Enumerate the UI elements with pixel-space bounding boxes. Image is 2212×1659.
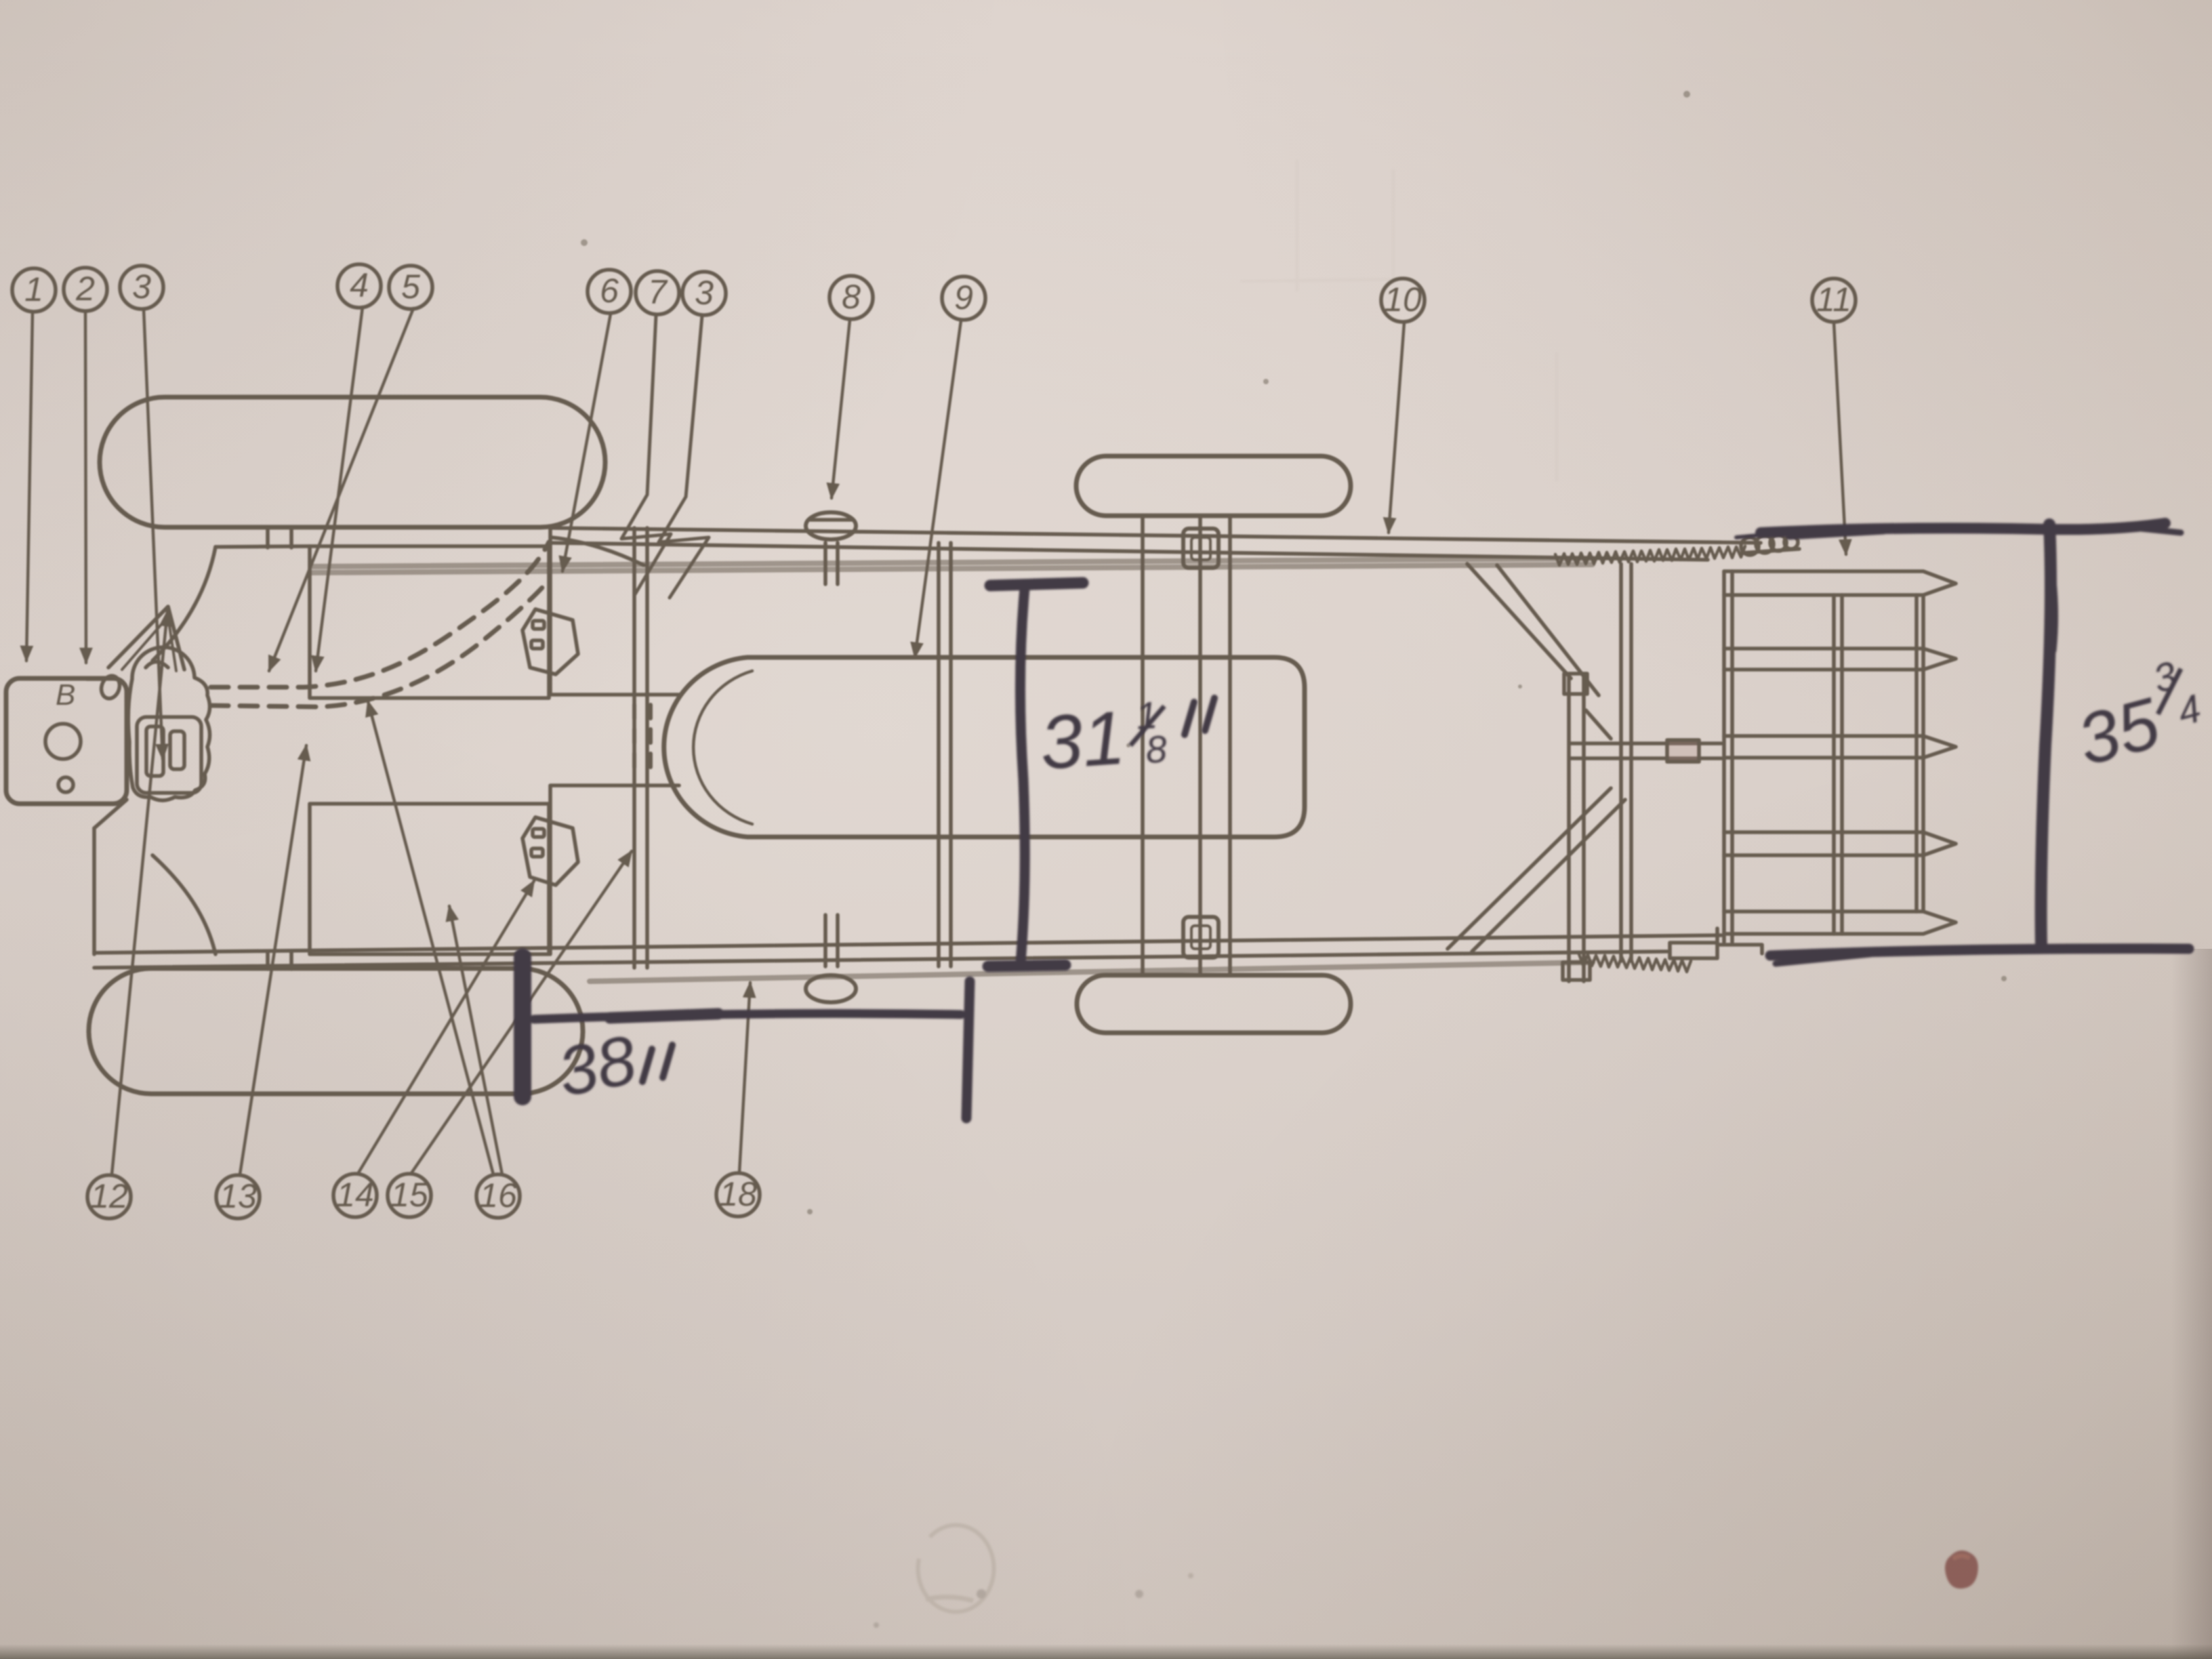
- svg-text:1: 1: [24, 270, 43, 308]
- svg-text:12: 12: [90, 1177, 128, 1215]
- svg-text:16: 16: [479, 1176, 517, 1214]
- svg-text:8: 8: [842, 278, 861, 316]
- svg-text:11: 11: [1816, 281, 1851, 319]
- svg-text:B: B: [56, 678, 75, 712]
- svg-text:18: 18: [719, 1175, 757, 1213]
- svg-text:8: 8: [1144, 727, 1168, 771]
- svg-text:3: 3: [132, 268, 151, 306]
- svg-text:2: 2: [75, 270, 95, 308]
- svg-text:10: 10: [1384, 281, 1422, 319]
- svg-text:38: 38: [552, 1021, 642, 1111]
- svg-text:6: 6: [600, 272, 619, 310]
- svg-text:15: 15: [390, 1176, 428, 1214]
- svg-text:3: 3: [695, 274, 714, 312]
- svg-text:7: 7: [648, 273, 668, 311]
- svg-text:13: 13: [219, 1177, 257, 1215]
- svg-text:31: 31: [1038, 695, 1128, 785]
- svg-text:9: 9: [954, 279, 973, 316]
- svg-text:14: 14: [336, 1176, 374, 1214]
- svg-text:5: 5: [401, 268, 420, 306]
- svg-text:4: 4: [350, 266, 369, 304]
